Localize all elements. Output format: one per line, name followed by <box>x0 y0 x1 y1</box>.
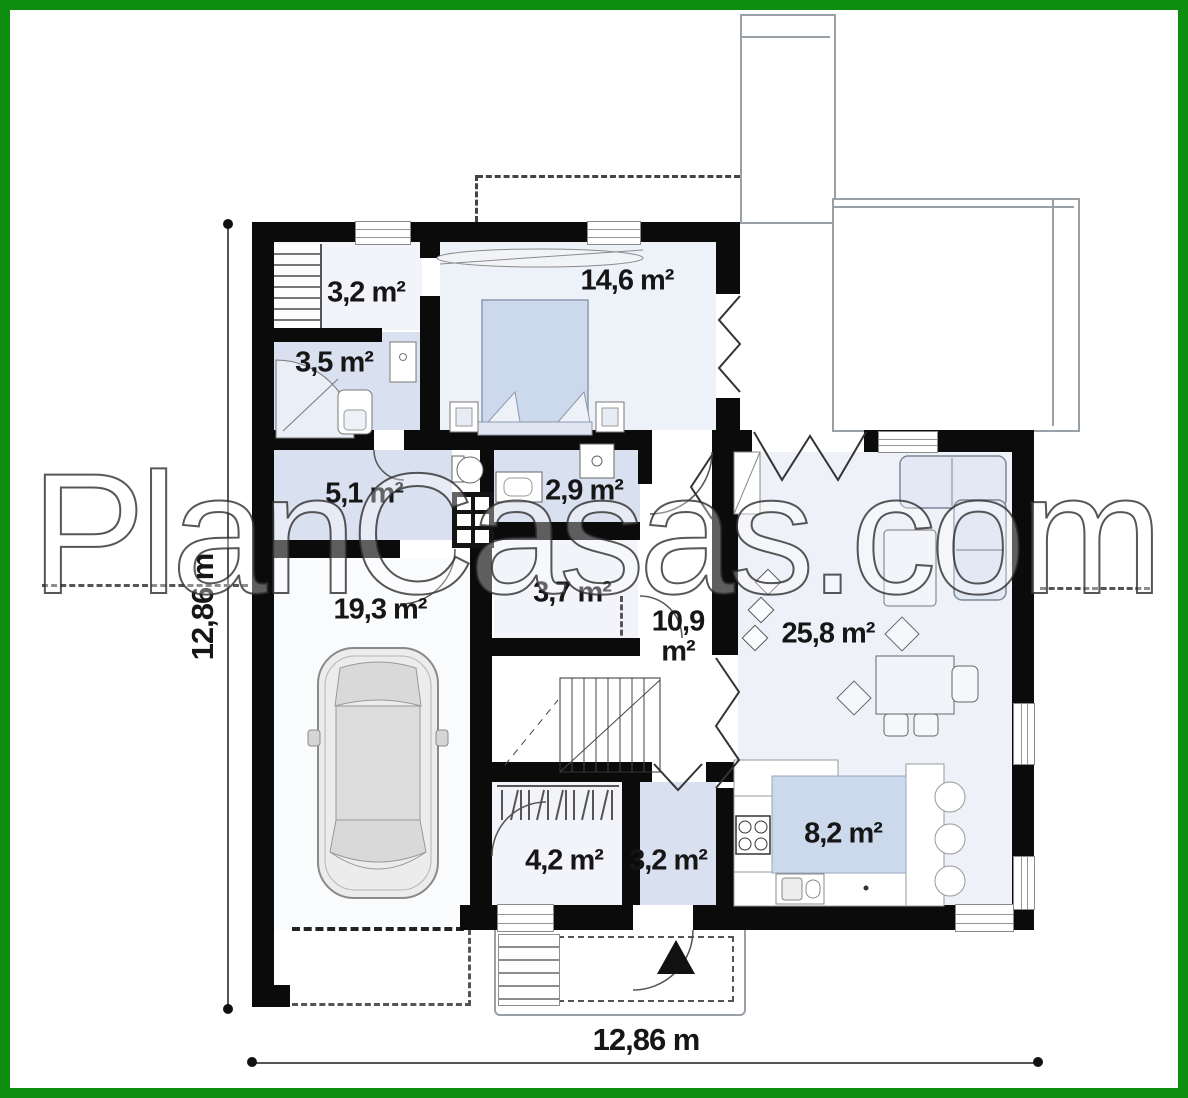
tv-cabinet <box>734 452 760 514</box>
room-label-wardrobe-entry: 4,2 m² <box>525 845 603 878</box>
room-label-entry: 3,2 m² <box>629 845 707 878</box>
room-label-bedroom: 14,6 m² <box>581 265 674 298</box>
window <box>355 221 411 245</box>
car <box>308 648 448 898</box>
dimension-dot <box>247 1057 257 1067</box>
dimension-dot <box>1033 1057 1043 1067</box>
folding-door-zigzags <box>654 296 866 790</box>
water-heater <box>452 456 483 483</box>
floor-plan-canvas: 3,2 m² 14,6 m² 3,5 m² 5,1 m² 2,9 m² 19,3… <box>0 0 1188 1098</box>
stove <box>736 816 770 854</box>
bathroom-sink <box>390 342 416 382</box>
bar-stools <box>935 782 965 896</box>
window <box>1013 703 1035 765</box>
toilet <box>338 390 372 434</box>
window <box>878 431 938 453</box>
room-label-wc: 2,9 m² <box>545 475 623 508</box>
dimension-line-bottom <box>252 1062 1038 1064</box>
coat-hangers <box>497 786 619 820</box>
room-label-pantry: 3,7 m² <box>533 577 611 610</box>
bed <box>450 300 624 435</box>
pouf-cushions <box>742 569 780 650</box>
wc-sink <box>496 472 542 502</box>
furniture-linework <box>0 0 1188 1098</box>
room-label-hall: 10,9 m² <box>652 607 704 666</box>
entrance-arrow <box>657 940 695 974</box>
window <box>955 904 1014 932</box>
washing-machine <box>580 444 614 478</box>
dimension-label-left: 12,86 m <box>185 554 221 661</box>
room-label-wardrobe-top: 3,2 m² <box>327 277 405 310</box>
dimension-line-left <box>227 224 229 1008</box>
staircase <box>505 678 660 772</box>
dimension-label-bottom: 12,86 m <box>593 1022 700 1058</box>
room-label-garage: 19,3 m² <box>334 594 427 627</box>
dimension-dot <box>223 219 233 229</box>
room-label-living: 25,8 m² <box>782 618 875 651</box>
window <box>497 904 554 932</box>
room-label-corridor: 5,1 m² <box>325 478 403 511</box>
dimension-dot <box>223 1004 233 1014</box>
room-label-bathroom: 3,5 m² <box>295 347 373 380</box>
coffee-table <box>884 530 936 606</box>
window <box>587 221 641 245</box>
kitchen-sink <box>776 874 824 904</box>
window <box>1013 856 1035 910</box>
room-label-kitchen: 8,2 m² <box>804 818 882 851</box>
